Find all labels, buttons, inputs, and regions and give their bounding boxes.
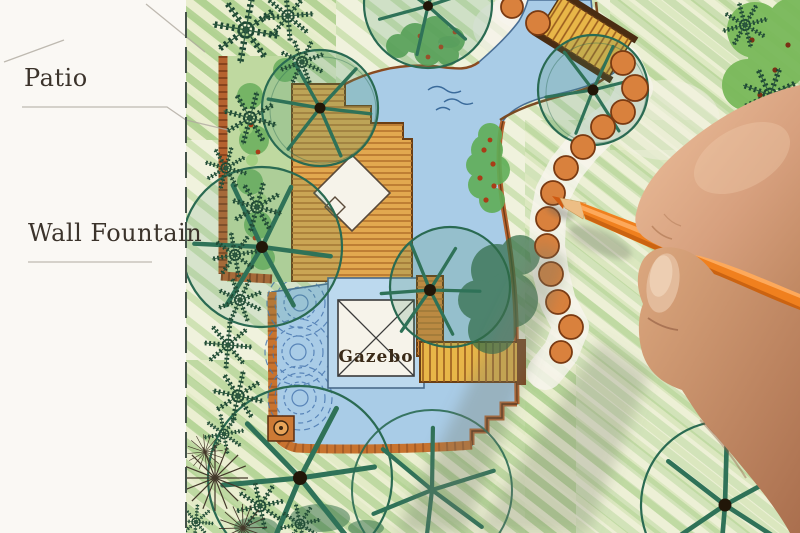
- stepping-stone: [571, 135, 595, 159]
- stepping-stone: [559, 315, 583, 339]
- stepping-stone: [611, 51, 635, 75]
- wall-fountain-label: Wall Fountain: [28, 219, 202, 247]
- plan-drawing: Gazebo: [0, 0, 800, 533]
- tree-canopy: [182, 167, 342, 327]
- stepping-stone: [622, 75, 648, 101]
- water-fixture: [268, 416, 294, 441]
- stepping-stone: [591, 115, 615, 139]
- gazebo-label: Gazebo: [338, 347, 413, 367]
- stepping-stone: [554, 156, 578, 180]
- stepping-stone: [526, 11, 550, 35]
- patio-label: Patio: [24, 64, 88, 92]
- stepping-stone: [501, 0, 523, 18]
- stepping-stone: [611, 100, 635, 124]
- landscape-plan-photo: Gazebo: [0, 0, 800, 533]
- stepping-stone: [550, 341, 572, 363]
